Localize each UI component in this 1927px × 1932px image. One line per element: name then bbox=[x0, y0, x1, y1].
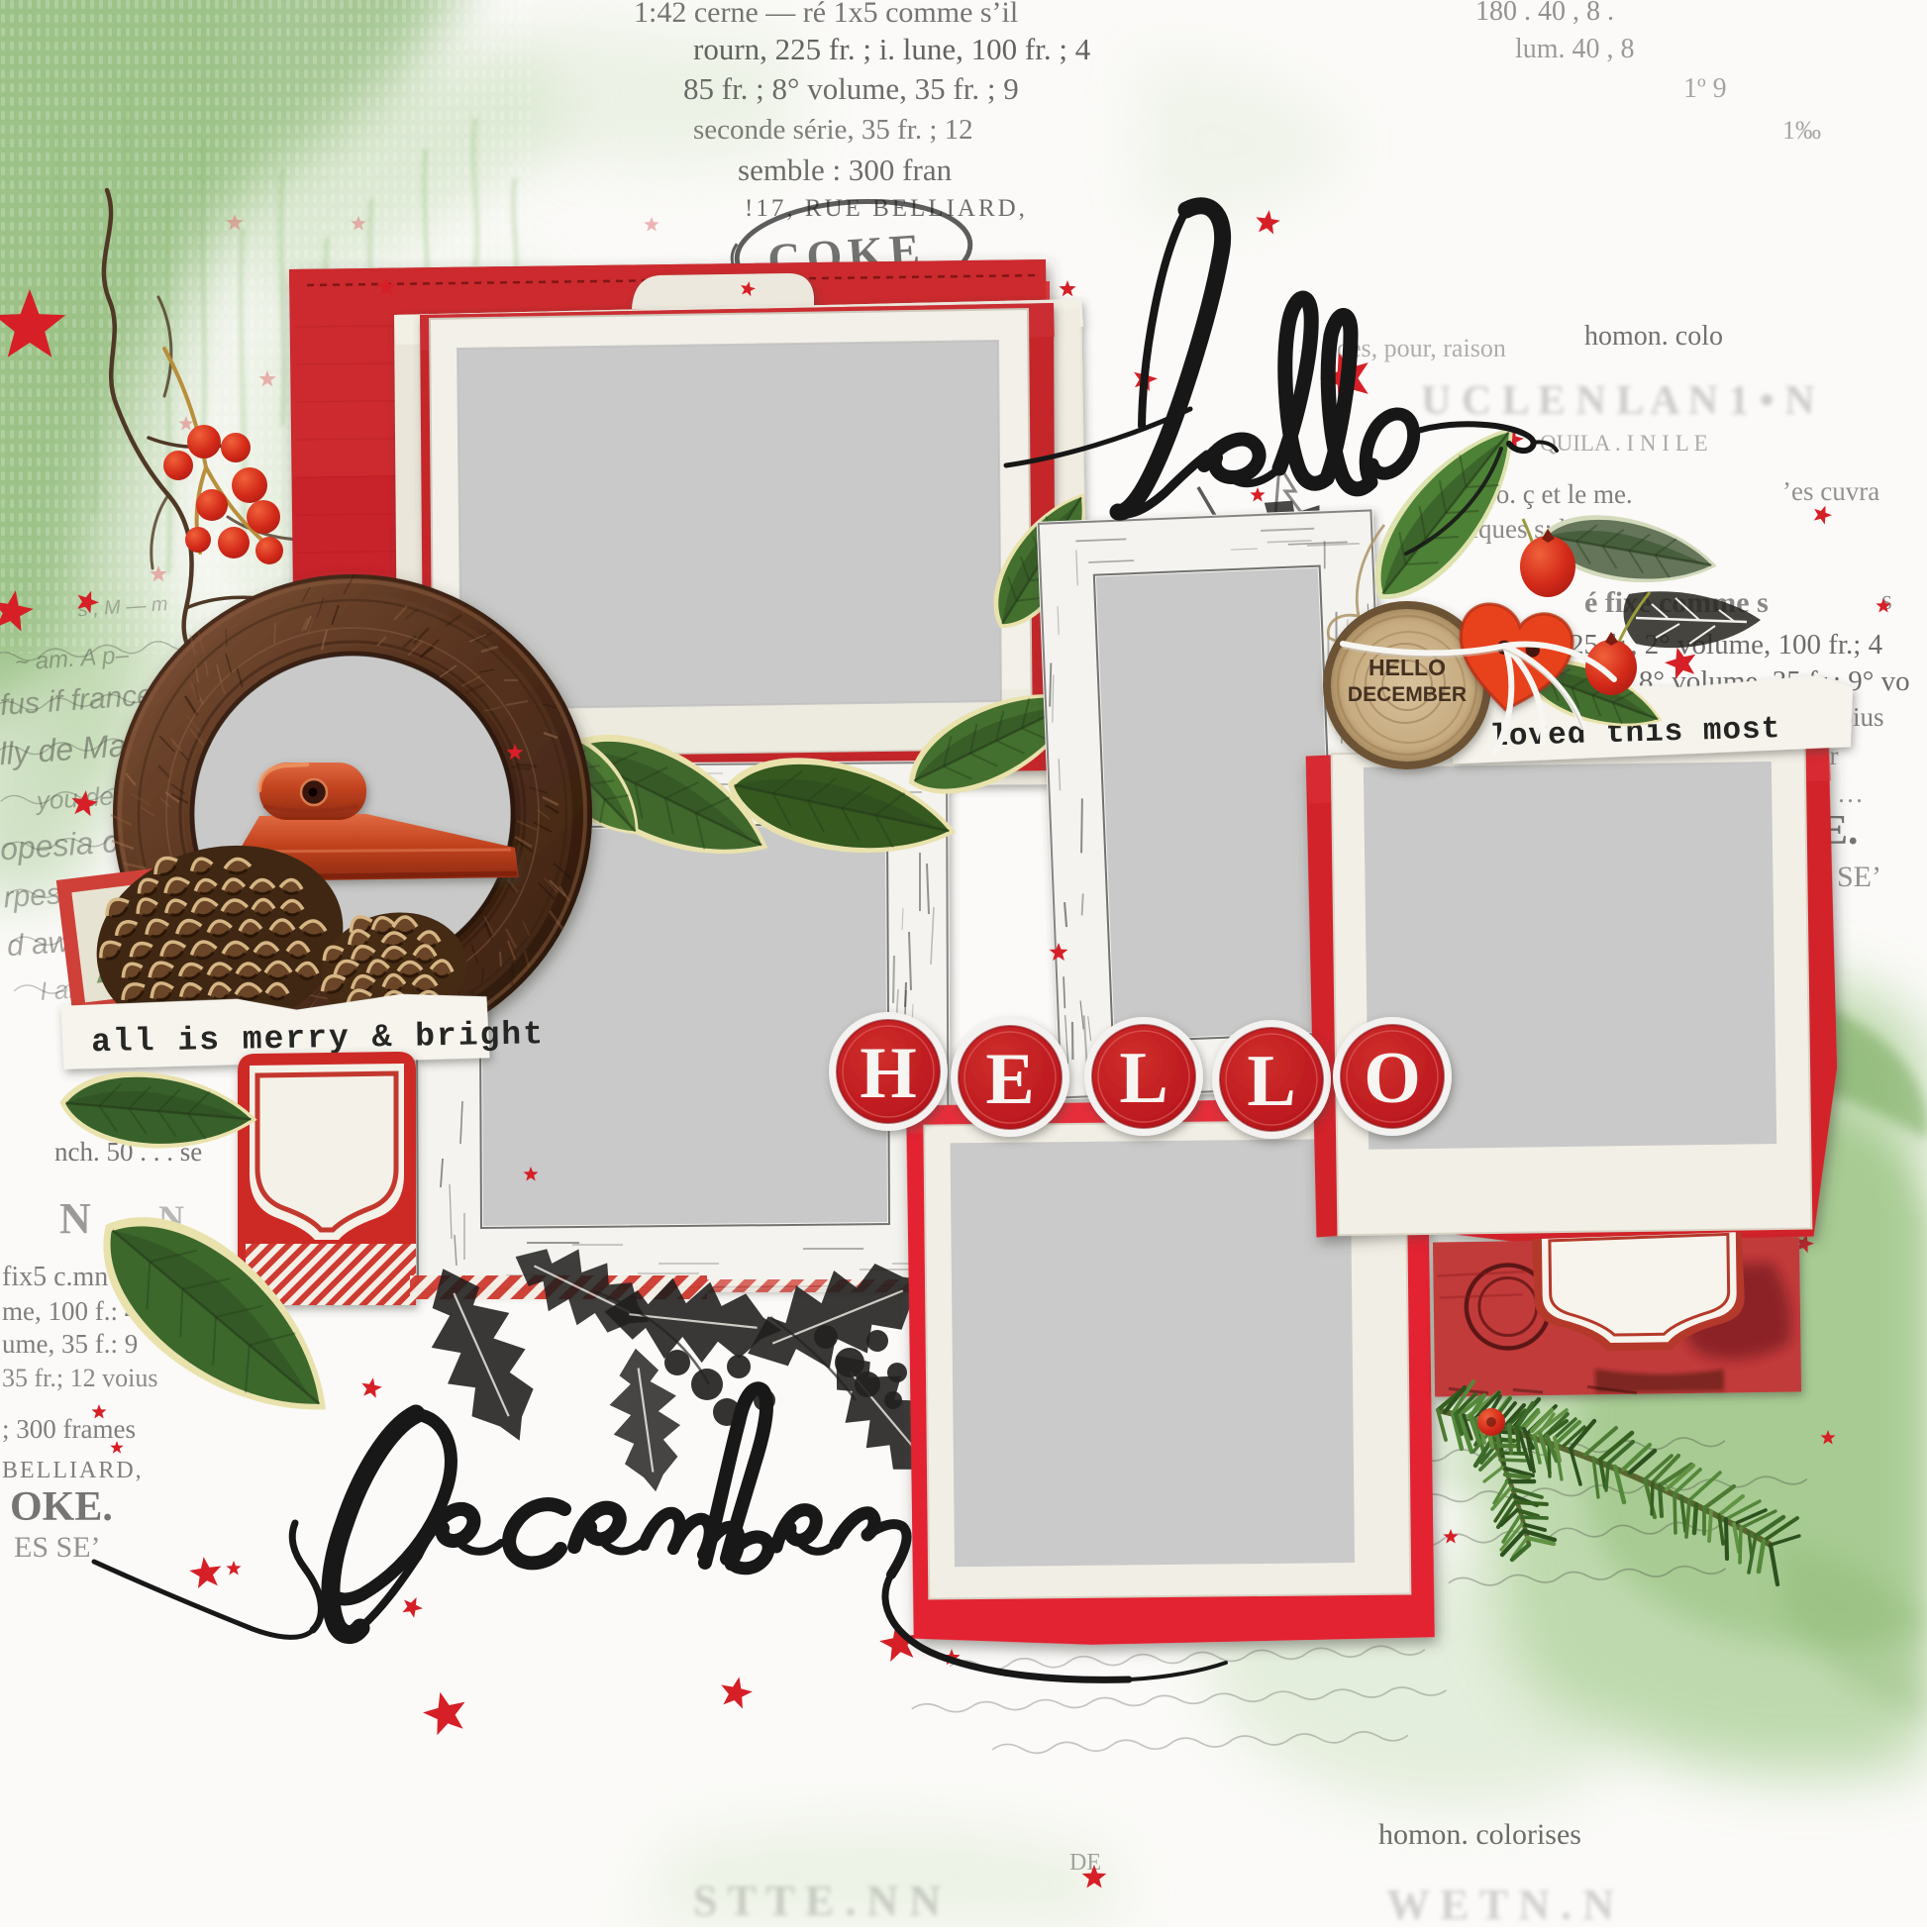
svg-text:fix5 c.mn: fix5 c.mn bbox=[2, 1262, 108, 1292]
svg-text:!17, RUE BELLIARD,: !17, RUE BELLIARD, bbox=[745, 195, 1028, 222]
svg-text:lum. 40 , 8: lum. 40 , 8 bbox=[1515, 34, 1635, 64]
svg-text:ES SE’: ES SE’ bbox=[14, 1531, 101, 1564]
svg-text:85 fr. ; 8° volume, 35 fr. ; 9: 85 fr. ; 8° volume, 35 fr. ; 9 bbox=[683, 71, 1019, 106]
svg-text:seconde série, 35 fr. ; 12: seconde série, 35 fr. ; 12 bbox=[693, 114, 973, 146]
svg-text:L: L bbox=[1119, 1038, 1167, 1119]
svg-text:L: L bbox=[1247, 1041, 1295, 1122]
svg-text:S T T E . N N: S T T E . N N bbox=[693, 1877, 941, 1925]
svg-text:N: N bbox=[59, 1194, 91, 1243]
svg-text:1º 9: 1º 9 bbox=[1683, 73, 1727, 104]
svg-text:me, 100 f.: 4: me, 100 f.: 4 bbox=[2, 1296, 139, 1326]
svg-text:QUILA . I N I L E: QUILA . I N I L E bbox=[1540, 431, 1708, 456]
svg-text:U C L E N L A N 1 • N: U C L E N L A N 1 • N bbox=[1421, 378, 1814, 424]
svg-text:180 . 40 , 8 .: 180 . 40 , 8 . bbox=[1475, 0, 1614, 27]
svg-text:ume, 35 f.: 9: ume, 35 f.: 9 bbox=[2, 1329, 138, 1359]
svg-text:homon. colorises: homon. colorises bbox=[1378, 1818, 1581, 1851]
svg-text:HELLO: HELLO bbox=[1369, 655, 1446, 680]
svg-text:des, pour, raison: des, pour, raison bbox=[1337, 334, 1506, 362]
svg-text:DECEMBER: DECEMBER bbox=[1348, 683, 1467, 706]
svg-text:1:42 cerne — ré 1x5 comme s’: 1:42 cerne — ré 1x5 comme s’il bbox=[634, 0, 1018, 29]
svg-text:H: H bbox=[860, 1033, 917, 1114]
svg-text:O: O bbox=[1364, 1038, 1421, 1119]
svg-text:homon. colo: homon. colo bbox=[1584, 321, 1723, 352]
svg-text:BELLIARD,: BELLIARD, bbox=[2, 1458, 144, 1483]
svg-text:35 fr.; 12 voius: 35 fr.; 12 voius bbox=[2, 1364, 157, 1392]
svg-text:1‰: 1‰ bbox=[1782, 116, 1821, 145]
svg-text:’es cuvra: ’es cuvra bbox=[1782, 476, 1879, 506]
svg-text:E: E bbox=[985, 1039, 1034, 1120]
svg-text:OKE.: OKE. bbox=[10, 1484, 113, 1530]
svg-text:; 300 frames: ; 300 frames bbox=[2, 1414, 136, 1444]
svg-text:W E T N . N: W E T N . N bbox=[1386, 1881, 1614, 1927]
svg-text:SE’: SE’ bbox=[1837, 861, 1881, 893]
svg-text:rourn, 225 fr. ; i. lune, 100: rourn, 225 fr. ; i. lune, 100 fr. ; 4 bbox=[693, 32, 1091, 66]
svg-text:semble : 300 fran: semble : 300 fran bbox=[738, 153, 953, 187]
